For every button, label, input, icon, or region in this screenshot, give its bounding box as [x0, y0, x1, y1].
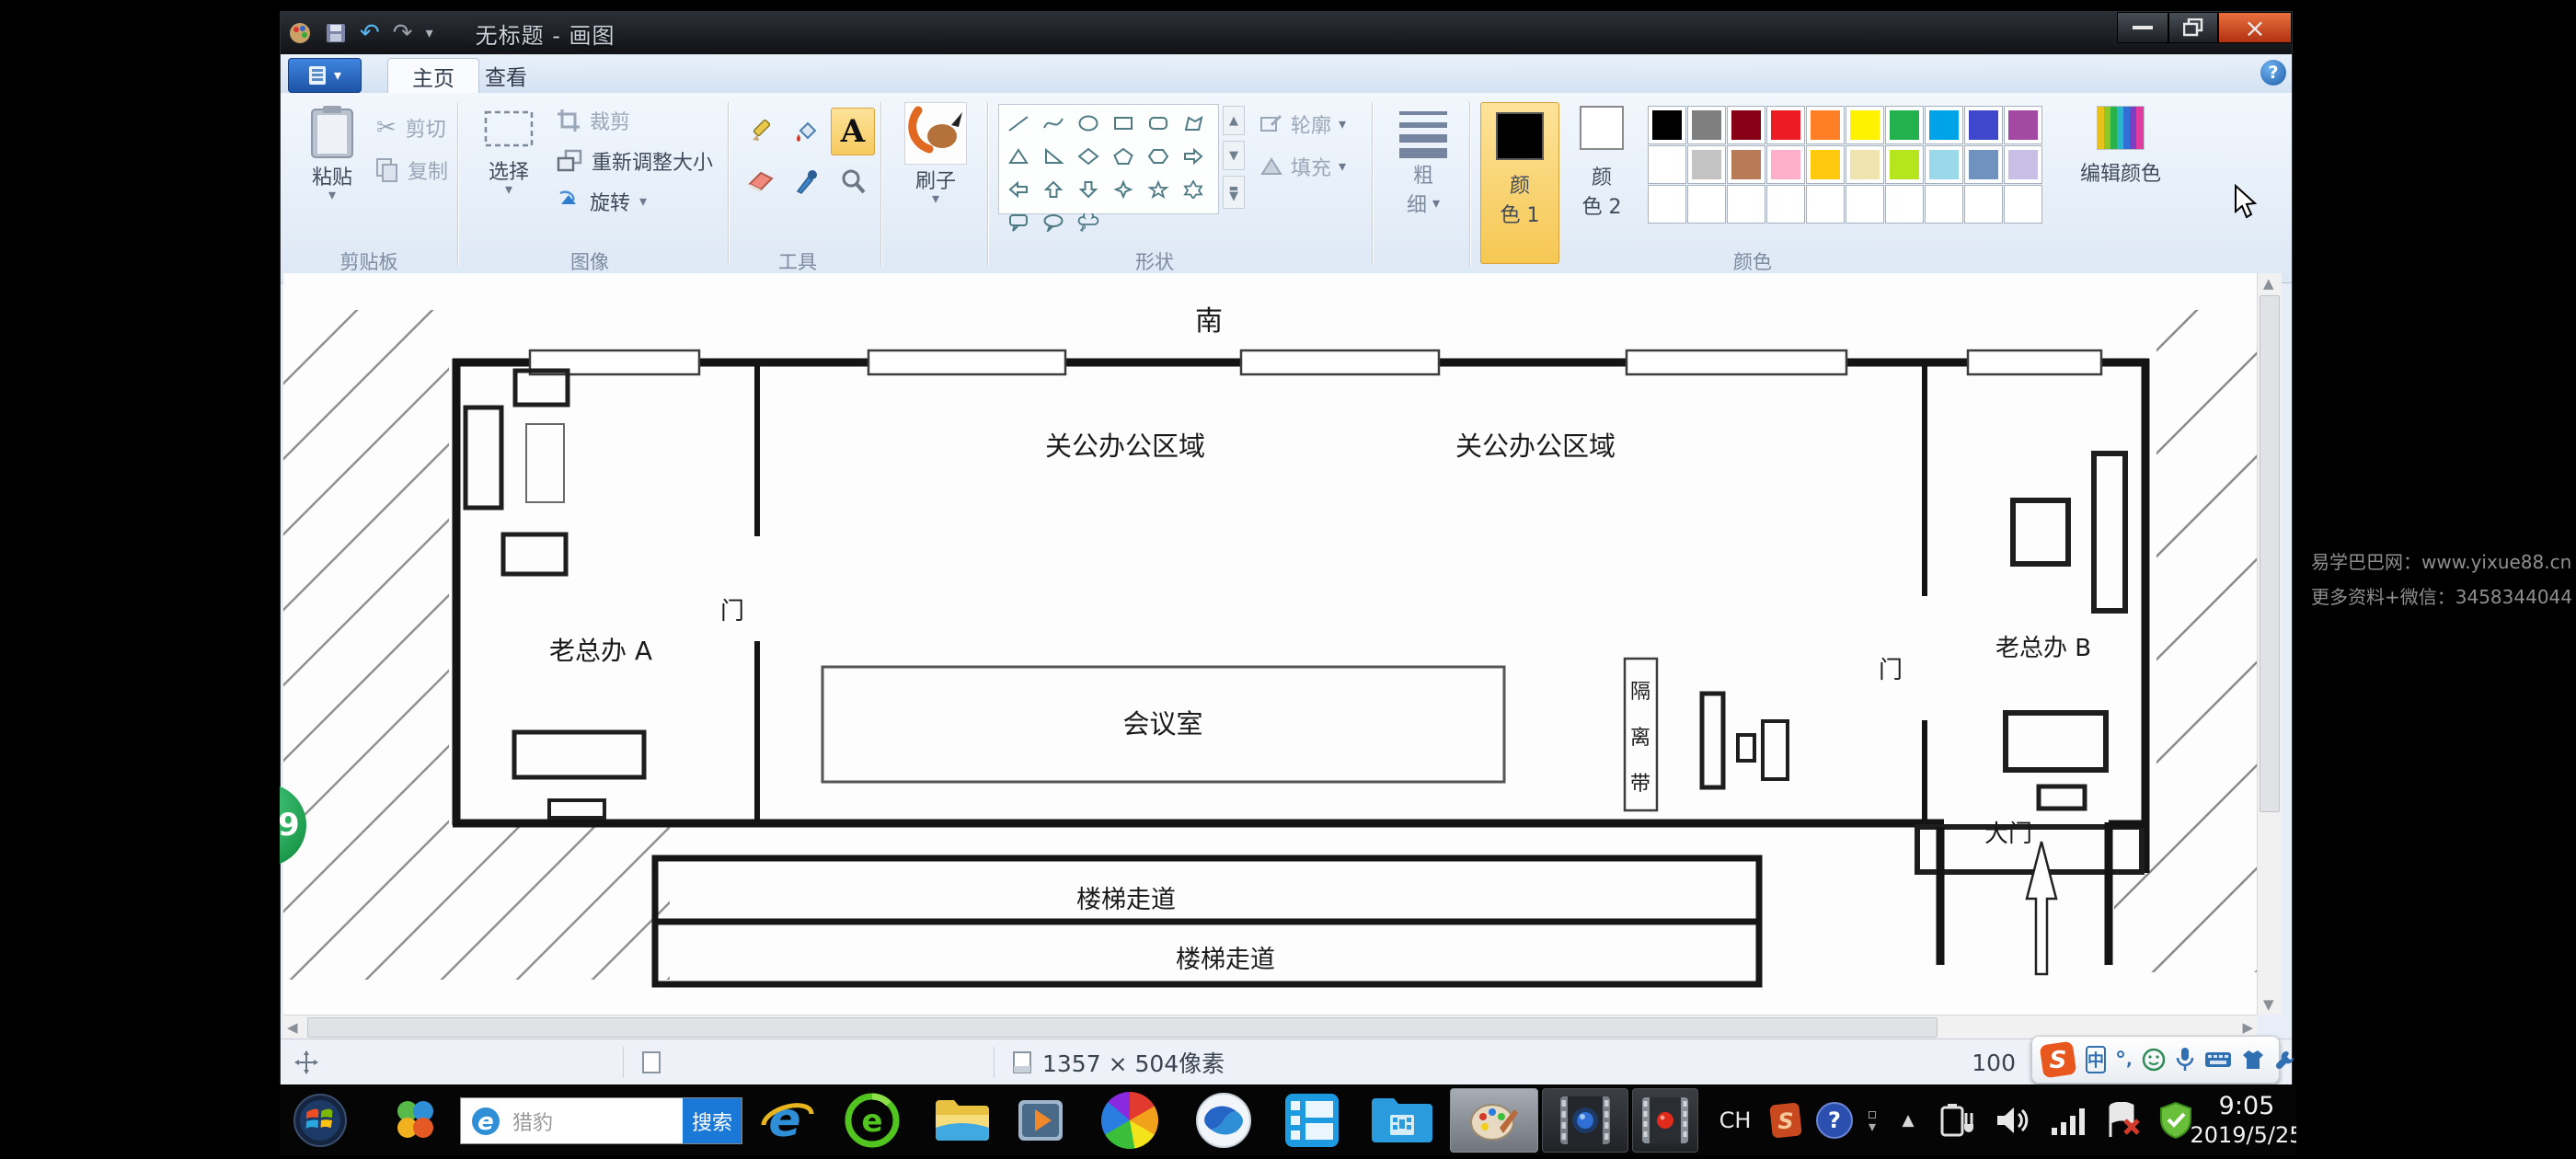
taskbar-video-folder-icon[interactable]	[1363, 1084, 1441, 1155]
window-title: 无标题 - 画图	[476, 17, 615, 50]
close-button[interactable]: ×	[2218, 12, 2292, 43]
palette-swatch[interactable]	[1648, 145, 1686, 184]
label-stairs-1: 楼梯走道	[1076, 886, 1176, 914]
taskbar-sogou-browser-icon[interactable]	[1189, 1084, 1259, 1155]
palette-swatch[interactable]	[1885, 145, 1924, 184]
shape-four-point-star-icon[interactable]	[1108, 173, 1138, 206]
shape-triangle-icon[interactable]	[1003, 140, 1033, 173]
palette-swatch[interactable]	[1687, 106, 1726, 144]
shapes-scroll-up[interactable]: ▲	[1223, 106, 1245, 135]
label-door-a: 门	[720, 598, 744, 625]
color-picker-tool[interactable]	[785, 157, 829, 205]
shape-hexagon-icon[interactable]	[1143, 140, 1173, 173]
shape-right-arrow-icon[interactable]	[1178, 140, 1208, 173]
palette-empty-swatch[interactable]	[1964, 185, 2003, 224]
crop-icon	[557, 109, 581, 132]
taskbar-search-box[interactable]: e 猎豹 搜索	[460, 1097, 742, 1144]
watermark-line1: 易学巴巴网：www.yixue88.cn	[2311, 545, 2574, 579]
label-south: 南	[1195, 305, 1223, 338]
paste-icon	[308, 104, 356, 161]
shape-curve-icon[interactable]	[1038, 107, 1068, 140]
title-bar: ↶ ↷ ▾ 无标题 - 画图 ×	[281, 12, 2292, 54]
tray-time: 9:05	[2219, 1091, 2275, 1122]
tray-help-icon[interactable]: ?	[1811, 1084, 1858, 1155]
palette-swatch[interactable]	[1846, 145, 1884, 184]
shapes-scroll-down[interactable]: ▼	[1223, 141, 1245, 170]
edit-colors-button[interactable]: 编辑颜色	[2065, 106, 2176, 187]
label-door-b: 门	[1879, 657, 1903, 684]
eraser-tool[interactable]	[739, 157, 783, 205]
color-palette	[1648, 106, 2043, 224]
horizontal-scrollbar[interactable]: ◀ ▶	[283, 1015, 2257, 1039]
search-button[interactable]: 搜索	[683, 1098, 742, 1143]
palette-empty-swatch[interactable]	[1846, 185, 1884, 224]
taskbar-green-browser-icon[interactable]: e	[839, 1084, 905, 1155]
shapes-group-label: 形状	[1053, 247, 1256, 275]
label-boss-b: 老总办 B	[1995, 635, 2091, 662]
fill-bucket-icon	[793, 118, 821, 145]
scroll-up-icon[interactable]: ▲	[2263, 275, 2274, 292]
select-icon	[483, 109, 535, 148]
pencil-icon	[747, 118, 775, 145]
label-office-right: 关公办公区域	[1455, 430, 1616, 462]
tray-expand-icon[interactable]: ▲	[1892, 1084, 1925, 1155]
copy-icon	[376, 158, 398, 182]
taskbar-video-app1-button[interactable]	[1542, 1088, 1628, 1153]
taskbar-media-player-icon[interactable]	[1010, 1084, 1071, 1155]
color2-swatch	[1580, 106, 1624, 150]
rotate-icon	[557, 189, 581, 213]
shape-cloud-callout-icon[interactable]	[1073, 206, 1103, 239]
tab-view[interactable]: 查看	[461, 58, 551, 93]
shape-up-arrow-icon[interactable]	[1038, 173, 1068, 206]
svg-text:e: e	[861, 1103, 882, 1140]
shape-rounded-callout-icon[interactable]	[1003, 206, 1033, 239]
start-button[interactable]	[289, 1084, 351, 1155]
label-meeting-room: 会议室	[1122, 708, 1202, 740]
tray-power-icon[interactable]	[1932, 1084, 1984, 1155]
palette-swatch[interactable]	[1806, 145, 1845, 184]
ime-toolbar[interactable]: S 中 °,	[2031, 1036, 2280, 1084]
color1-button[interactable]: 颜 色 1	[1480, 102, 1559, 264]
search-query-text: 猎豹	[512, 1107, 553, 1136]
label-main-gate: 大门	[1984, 820, 2032, 848]
size-button[interactable]: 粗 细▾	[1383, 106, 1464, 218]
palette-empty-swatch[interactable]	[1885, 185, 1924, 224]
palette-empty-swatch[interactable]	[1727, 185, 1765, 224]
pencil-tool[interactable]	[739, 108, 783, 155]
shape-oval-callout-icon[interactable]	[1038, 206, 1068, 239]
paint-logo-icon	[288, 21, 312, 45]
minimize-button[interactable]	[2117, 12, 2168, 43]
redo-icon[interactable]: ↷	[393, 19, 413, 47]
gate-arrow	[2027, 842, 2056, 974]
image-size-icon	[1011, 1050, 1033, 1075]
resize-button[interactable]: 重新调整大小	[557, 146, 713, 176]
svg-text:S: S	[2050, 1047, 2067, 1074]
outline-button[interactable]: 轮廓▾	[1259, 109, 1346, 139]
app-icon-colorleaf[interactable]	[386, 1084, 443, 1155]
floor-plan: 南 关公办公区域 关公办公区域 老总办 A 门 门 老总办 B 会议室 隔 离 …	[283, 273, 2257, 1015]
zoom-level-text: 100	[1972, 1050, 2016, 1076]
shape-rectangle-icon[interactable]	[1108, 107, 1138, 140]
color-picker-icon	[794, 167, 820, 195]
shape-rounded-rectangle-icon[interactable]	[1143, 107, 1173, 140]
drawing-canvas[interactable]: 南 关公办公区域 关公办公区域 老总办 A 门 门 老总办 B 会议室 隔 离 …	[283, 273, 2257, 1015]
shape-line-icon[interactable]	[1003, 107, 1033, 140]
palette-empty-swatch[interactable]	[1925, 185, 1963, 224]
svg-text:e: e	[477, 1108, 494, 1136]
tray-sogou-icon[interactable]: S	[1763, 1084, 1809, 1155]
ime-keyboard-icon[interactable]	[2204, 1050, 2232, 1070]
ribbon: 粘贴 ▾ ✂ 剪切 复制 剪贴板 选择 ▾	[281, 93, 2292, 283]
taskbar: e 猎豹 搜索 e e	[0, 1084, 2576, 1155]
fill-button[interactable]: 填充▾	[1259, 152, 1346, 181]
palette-empty-swatch[interactable]	[1687, 185, 1726, 224]
image-size-text: 1357 × 504像素	[1042, 1046, 1225, 1079]
vertical-scrollbar[interactable]: ▲ ▼	[2257, 273, 2282, 1015]
magnifier-icon	[839, 167, 867, 195]
color1-swatch	[1496, 112, 1544, 160]
svg-text:?: ?	[1828, 1107, 1841, 1133]
watermark-line2: 更多资料+微信：3458344044	[2311, 579, 2574, 614]
qat-dropdown-icon[interactable]: ▾	[426, 29, 433, 38]
brush-button[interactable]: 刷子 ▾	[891, 102, 980, 203]
undo-icon[interactable]: ↶	[360, 19, 380, 47]
taskbar-recorder-button[interactable]	[1632, 1088, 1698, 1153]
palette-swatch[interactable]	[1925, 106, 1963, 144]
palette-swatch[interactable]	[1885, 106, 1924, 144]
palette-swatch[interactable]	[2004, 106, 2042, 144]
palette-swatch[interactable]	[1727, 106, 1765, 144]
screen: ↶ ↷ ▾ 无标题 - 画图 × ▾ 主页 查看 ?	[0, 0, 2576, 1159]
rotate-button[interactable]: 旋转 ▾	[557, 187, 647, 216]
status-bar: 1357 × 504像素 100	[281, 1039, 2292, 1085]
watermark: 易学巴巴网：www.yixue88.cn 更多资料+微信：3458344044	[2311, 545, 2574, 614]
palette-empty-swatch[interactable]	[1766, 185, 1805, 224]
brush-icon	[904, 102, 967, 165]
palette-swatch[interactable]	[1964, 106, 2003, 144]
restore-button[interactable]	[2168, 12, 2218, 43]
label-isolation-3: 带	[1630, 773, 1650, 796]
tray-action-center-icon[interactable]	[2098, 1084, 2147, 1155]
tray-date: 2019/5/25	[2190, 1121, 2303, 1149]
palette-empty-swatch[interactable]	[2004, 185, 2042, 224]
shapes-gallery-expand[interactable]: ▬▼	[1223, 176, 1245, 209]
tray-volume-icon[interactable]	[1987, 1084, 2039, 1155]
edit-colors-icon	[2097, 106, 2145, 150]
palette-swatch[interactable]	[1727, 145, 1765, 184]
tray-network-icon[interactable]	[2044, 1084, 2094, 1155]
help-icon[interactable]: ?	[2260, 60, 2286, 86]
eraser-icon	[746, 169, 776, 193]
mouse-cursor	[2232, 184, 2260, 221]
shape-pentagon-icon[interactable]	[1108, 140, 1138, 173]
taskbar-explorer-icon[interactable]	[929, 1084, 995, 1155]
label-stairs-2: 楼梯走道	[1176, 946, 1275, 974]
shape-diamond-icon[interactable]	[1073, 140, 1103, 173]
label-boss-a: 老总办 A	[549, 636, 652, 666]
shape-right-triangle-icon[interactable]	[1038, 140, 1068, 173]
palette-swatch[interactable]	[1806, 106, 1845, 144]
crop-button[interactable]: 裁剪	[557, 106, 630, 135]
palette-empty-swatch[interactable]	[1806, 185, 1845, 224]
scroll-right-icon[interactable]: ▶	[2242, 1019, 2253, 1036]
cursor-position-icon	[293, 1050, 319, 1075]
palette-swatch[interactable]	[1964, 145, 2003, 184]
scissors-icon: ✂	[376, 114, 397, 142]
tray-mini-icon[interactable]: ▫▾	[1860, 1084, 1884, 1155]
svg-text:e: e	[768, 1094, 800, 1147]
tools-group-label: 工具	[696, 247, 899, 275]
palette-swatch[interactable]	[1846, 106, 1884, 144]
palette-swatch[interactable]	[1687, 145, 1726, 184]
paste-button[interactable]: 粘贴 ▾	[295, 104, 369, 200]
shape-five-point-star-icon[interactable]	[1143, 173, 1173, 206]
shape-down-arrow-icon[interactable]	[1073, 173, 1103, 206]
ime-mic-icon[interactable]	[2175, 1047, 2195, 1073]
taskbar-360-browser-icon[interactable]	[1095, 1084, 1165, 1155]
shapes-gallery	[998, 104, 1219, 214]
scroll-down-icon[interactable]: ▼	[2263, 996, 2274, 1013]
paint-window: ↶ ↷ ▾ 无标题 - 画图 × ▾ 主页 查看 ?	[280, 11, 2293, 1084]
ime-punctuation-icon[interactable]: °,	[2115, 1047, 2133, 1073]
palette-swatch[interactable]	[1766, 145, 1805, 184]
label-isolation-2: 离	[1630, 727, 1650, 750]
palette-swatch[interactable]	[2004, 145, 2042, 184]
color2-button[interactable]: 颜 色 2	[1567, 106, 1637, 220]
fill-tool[interactable]	[785, 108, 829, 155]
ime-mode-icon[interactable]: 中	[2086, 1046, 2106, 1073]
taskbar-ie-icon[interactable]: e	[753, 1084, 821, 1155]
app-menu-button[interactable]: ▾	[288, 58, 362, 93]
resize-icon	[557, 149, 582, 173]
outline-icon	[1259, 113, 1283, 135]
label-isolation-1: 隔	[1630, 681, 1650, 704]
image-group-label: 图像	[489, 247, 691, 275]
tray-language-indicator[interactable]: CH	[1713, 1084, 1757, 1155]
save-icon[interactable]	[325, 22, 347, 44]
palette-swatch[interactable]	[1648, 106, 1686, 144]
search-engine-icon: e	[470, 1106, 501, 1137]
clipboard-group-label: 剪贴板	[268, 247, 470, 275]
ime-emoji-icon[interactable]	[2142, 1048, 2166, 1072]
cut-button[interactable]: ✂ 剪切	[376, 113, 446, 143]
magnifier-tool[interactable]	[831, 157, 875, 205]
colors-group-label: 颜色	[1651, 247, 1854, 275]
palette-empty-swatch[interactable]	[1648, 185, 1686, 224]
ribbon-tab-row: ▾ 主页 查看 ?	[281, 54, 2292, 94]
shape-six-point-star-icon[interactable]	[1178, 173, 1208, 206]
shape-left-arrow-icon[interactable]	[1003, 173, 1033, 206]
sogou-logo-icon[interactable]: S	[2040, 1041, 2076, 1078]
ime-toolbox-icon[interactable]	[2274, 1049, 2296, 1071]
tray-clock[interactable]: 9:05 2019/5/25	[2201, 1084, 2293, 1155]
line-width-icon	[1396, 106, 1451, 159]
palette-swatch[interactable]	[1925, 145, 1963, 184]
select-button[interactable]: 选择 ▾	[470, 104, 547, 194]
fill-shape-icon	[1259, 155, 1283, 178]
selection-size-icon	[640, 1050, 662, 1075]
taskbar-video-manager-icon[interactable]	[1277, 1084, 1347, 1155]
text-tool-icon: A	[841, 113, 865, 150]
copy-button[interactable]: 复制	[376, 155, 448, 185]
label-office-left: 关公办公区域	[1045, 430, 1205, 462]
palette-swatch[interactable]	[1766, 106, 1805, 144]
taskbar-paint-button[interactable]	[1450, 1088, 1538, 1153]
svg-text:S: S	[1777, 1108, 1793, 1134]
ime-skin-icon[interactable]	[2241, 1049, 2265, 1071]
scroll-left-icon[interactable]: ◀	[287, 1019, 298, 1036]
shape-polygon-icon[interactable]	[1178, 107, 1208, 140]
shape-ellipse-icon[interactable]	[1073, 107, 1103, 140]
text-tool[interactable]: A	[831, 108, 875, 155]
